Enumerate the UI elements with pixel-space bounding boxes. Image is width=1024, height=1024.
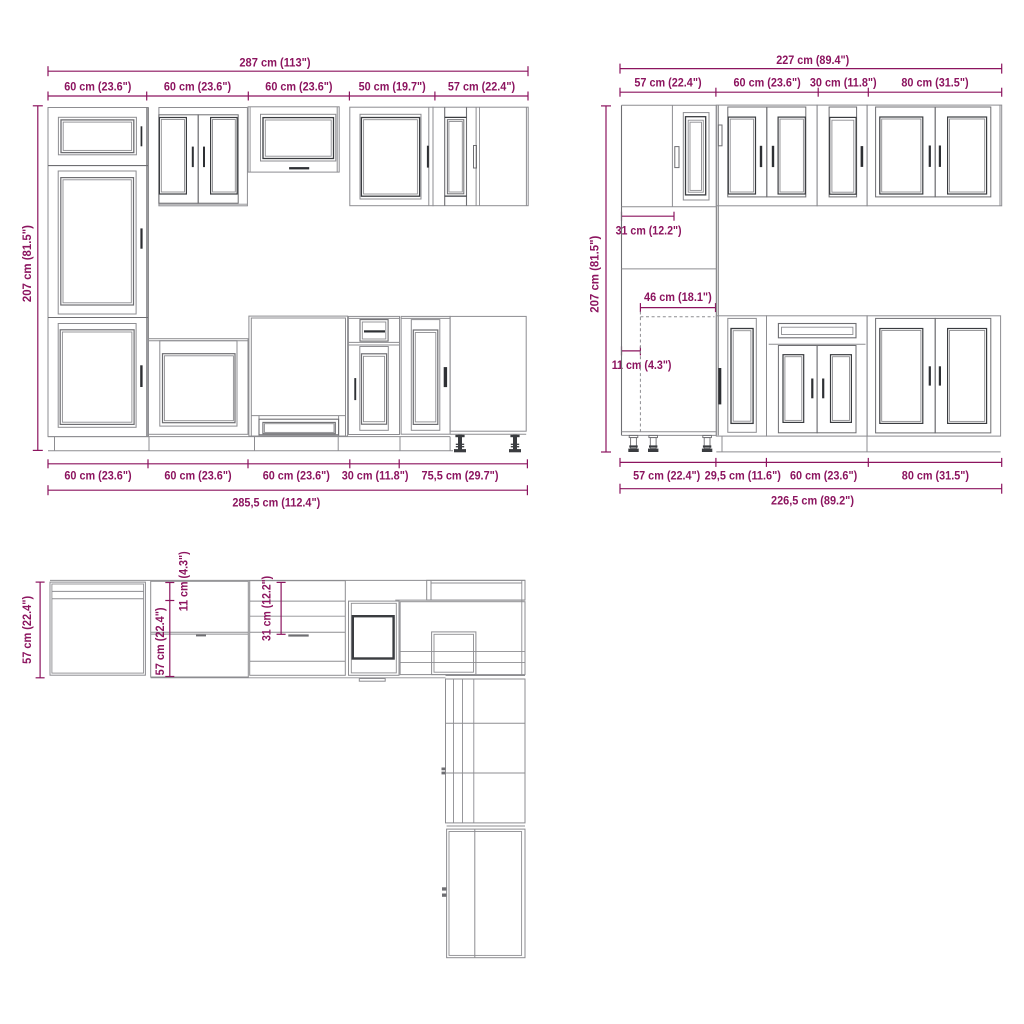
svg-text:31 cm (12.2"): 31 cm (12.2")	[616, 223, 682, 237]
svg-text:60 cm (23.6"): 60 cm (23.6")	[790, 468, 857, 482]
svg-text:50 cm (19.7"): 50 cm (19.7")	[359, 80, 426, 94]
svg-text:287 cm (113"): 287 cm (113")	[239, 55, 310, 69]
svg-text:11 cm (4.3"): 11 cm (4.3")	[612, 358, 672, 372]
svg-text:285,5 cm (112.4"): 285,5 cm (112.4")	[232, 495, 320, 509]
svg-text:207 cm (81.5"): 207 cm (81.5")	[20, 225, 34, 302]
svg-text:57 cm (22.4"): 57 cm (22.4")	[448, 80, 515, 94]
svg-text:57 cm (22.4"): 57 cm (22.4")	[633, 468, 700, 482]
svg-text:80 cm (31.5"): 80 cm (31.5")	[901, 76, 968, 90]
svg-text:75,5 cm (29.7"): 75,5 cm (29.7")	[422, 469, 499, 483]
svg-text:207 cm (81.5"): 207 cm (81.5")	[588, 236, 602, 313]
svg-text:11 cm (4.3"): 11 cm (4.3")	[177, 551, 191, 611]
svg-text:29,5 cm (11.6"): 29,5 cm (11.6")	[705, 468, 781, 482]
svg-text:57 cm (22.4"): 57 cm (22.4")	[20, 596, 34, 664]
svg-text:60 cm (23.6"): 60 cm (23.6")	[734, 76, 801, 90]
svg-text:60 cm (23.6"): 60 cm (23.6")	[64, 469, 131, 483]
svg-text:60 cm (23.6"): 60 cm (23.6")	[64, 80, 131, 94]
svg-text:57 cm (22.4"): 57 cm (22.4")	[634, 76, 701, 90]
svg-text:60 cm (23.6"): 60 cm (23.6")	[265, 80, 332, 94]
svg-text:80 cm (31.5"): 80 cm (31.5")	[902, 468, 969, 482]
svg-text:30 cm (11.8"): 30 cm (11.8")	[810, 76, 877, 90]
svg-text:60 cm (23.6"): 60 cm (23.6")	[263, 469, 330, 483]
svg-text:31 cm (12.2"): 31 cm (12.2")	[259, 576, 273, 641]
svg-text:227 cm (89.4"): 227 cm (89.4")	[776, 53, 849, 67]
svg-text:60 cm (23.6"): 60 cm (23.6")	[164, 469, 231, 483]
svg-text:46 cm (18.1"): 46 cm (18.1")	[644, 290, 712, 304]
svg-text:226,5 cm (89.2"): 226,5 cm (89.2")	[771, 493, 854, 507]
svg-text:60 cm (23.6"): 60 cm (23.6")	[164, 80, 231, 94]
svg-text:30 cm (11.8"): 30 cm (11.8")	[342, 469, 409, 483]
svg-text:57 cm (22.4"): 57 cm (22.4")	[153, 607, 167, 675]
